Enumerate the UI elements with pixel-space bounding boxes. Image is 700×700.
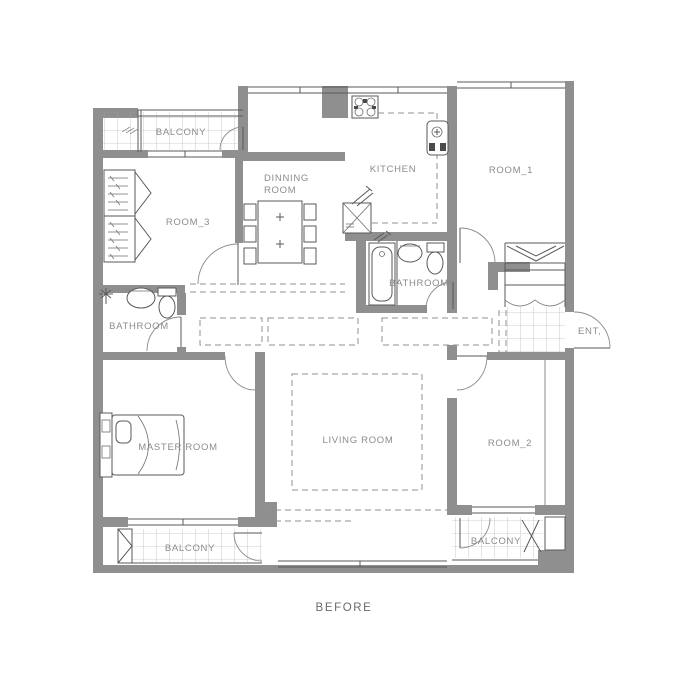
stove [352, 96, 378, 118]
kitchen-label: KITCHEN [370, 164, 417, 175]
dinning-room-label-2: ROOM [264, 185, 296, 196]
balcony-top: BALCONY [103, 112, 243, 152]
bathroom-left: BATHROOM [99, 288, 181, 351]
balcony-br-label: BALCONY [471, 536, 521, 547]
hall-dash-rect-2 [268, 318, 358, 345]
balcony-top-label: BALCONY [156, 127, 206, 138]
kitchen: KITCHEN [343, 96, 448, 233]
room3-label: ROOM_3 [166, 217, 210, 228]
dining-table [244, 201, 316, 264]
room1-closet [505, 243, 565, 307]
footer-label: BEFORE [316, 602, 373, 614]
living-room-label: LIVING ROOM [322, 435, 393, 446]
hall-dash-rect-3 [382, 318, 492, 345]
kitchen-prep-sink [343, 186, 373, 233]
toilet-center [427, 243, 444, 274]
entrance-tiles [499, 307, 565, 352]
bathroom-center: BATHROOM [369, 231, 453, 309]
balcony-bottom-left: BALCONY [118, 529, 262, 563]
living-dash-lines [265, 510, 447, 521]
hallway [200, 318, 492, 345]
floor-plan-canvas: BALCONY ROOM_3 DINNING ROOM [0, 0, 700, 700]
room-1: ROOM_1 [460, 165, 565, 307]
toilet-left [158, 288, 176, 318]
floor-plan-page: BALCONY ROOM_3 DINNING ROOM [0, 0, 700, 700]
entrance: ENT, [499, 307, 610, 352]
hall-dash-rect-1 [200, 318, 262, 345]
living-dash-rect [292, 374, 422, 490]
bathroom-center-label: BATHROOM [389, 278, 449, 289]
balcony-bl-louver [118, 529, 132, 563]
utility-box [545, 517, 565, 550]
living-room: LIVING ROOM [265, 374, 447, 521]
sink-left [127, 288, 155, 308]
room2-label: ROOM_2 [488, 438, 532, 449]
room2-door-arc [457, 356, 487, 390]
room3-door-arc [198, 244, 238, 284]
room1-door-arc [460, 228, 495, 263]
room1-label: ROOM_1 [489, 165, 533, 176]
dinning-room-label-1: DINNING [264, 173, 309, 184]
room-3: ROOM_3 [104, 170, 238, 285]
dinning-open-boundary [190, 284, 345, 292]
master-door-arc [225, 356, 255, 390]
bathroom-left-label: BATHROOM [109, 321, 169, 332]
bathtub-center [369, 243, 395, 305]
dinning-room: DINNING ROOM [190, 173, 345, 292]
room-2: ROOM_2 [457, 356, 545, 505]
sink-center [398, 244, 422, 262]
master-room-label: MASTER ROOM [138, 442, 217, 453]
wardrobe-room3 [104, 170, 151, 262]
kitchen-wall-sink [427, 121, 448, 155]
balcony-bl-label: BALCONY [165, 543, 215, 554]
entrance-label: ENT, [578, 326, 601, 337]
master-room: MASTER ROOM [100, 356, 255, 477]
